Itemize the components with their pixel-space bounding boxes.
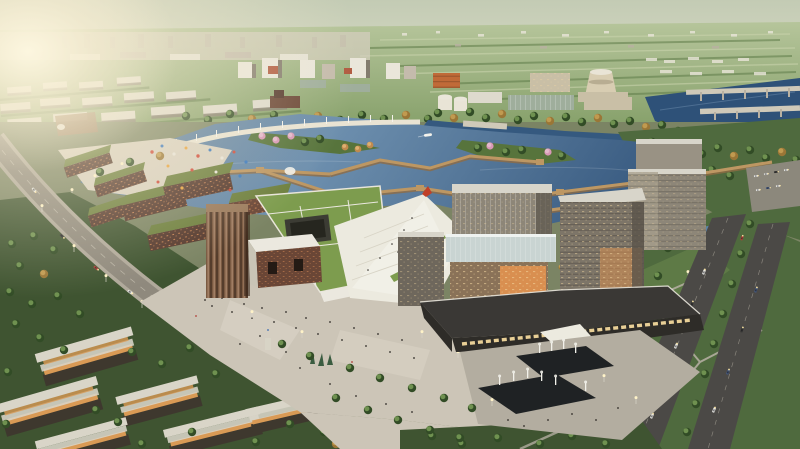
masterplan-rendering — [0, 0, 800, 449]
parking-lot — [746, 160, 800, 212]
kiosk-cylinder — [265, 338, 271, 350]
gallery-box — [248, 234, 322, 288]
rendering-canvas — [0, 0, 800, 449]
glass-tower-rear — [398, 232, 444, 306]
